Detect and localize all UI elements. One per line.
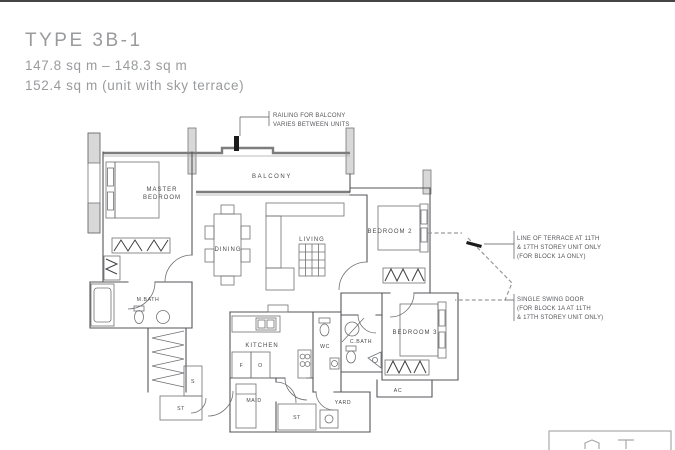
column [88, 203, 100, 233]
dining-table [214, 214, 241, 276]
label-bedroom2: BEDROOM 2 [367, 229, 412, 235]
label-fridge: F [240, 363, 244, 369]
coffee-table-grid [299, 244, 325, 276]
burner [305, 362, 310, 367]
annotation-railing-2: VARIES BETWEEN UNITS [273, 122, 350, 128]
label-store1: ST [177, 406, 185, 412]
walls [90, 152, 458, 432]
wardrobe [385, 360, 429, 375]
label-living: LIVING [299, 237, 325, 243]
walls-master-bath [90, 282, 192, 328]
toilet-bowl [347, 351, 356, 363]
pillow [108, 192, 114, 210]
master-bath-fixtures [91, 284, 170, 326]
door-arc-master-bath [128, 282, 155, 309]
dining-chair [205, 226, 214, 239]
sofa-arm [266, 216, 281, 268]
label-dining: DINING [215, 247, 242, 253]
wardrobe-hatch [385, 269, 424, 281]
floor-plan: MASTER BEDROOM BALCONY DINING LIVING BED… [0, 0, 675, 450]
bedroom2-furniture [378, 204, 428, 283]
balcony-rail-line [103, 148, 350, 153]
pillow [421, 228, 427, 242]
pillow [439, 332, 445, 348]
annotation-railing-1: RAILING FOR BALCONY [273, 113, 345, 119]
bed [378, 206, 420, 250]
label-ac-ledge: AC [394, 388, 402, 394]
door-arc-bedroom2 [339, 262, 367, 290]
wall-bedroom2-left [350, 195, 367, 262]
label-kitchen: KITCHEN [245, 343, 278, 349]
railing-marker [234, 136, 239, 151]
bathtub-inner [94, 288, 111, 322]
railing-leader [240, 111, 269, 136]
toilet-bowl [135, 311, 144, 324]
key-plan [549, 431, 671, 450]
wardrobe-hatch [387, 361, 426, 373]
console-table [268, 305, 288, 312]
furniture [91, 162, 446, 430]
toilet-tank [319, 318, 330, 323]
label-shoe-cabinet: S [191, 379, 195, 385]
pillow [108, 168, 114, 186]
terrace-dashed-diagonal [455, 238, 512, 300]
label-master-bedroom-2: BEDROOM [143, 195, 181, 201]
burner [305, 354, 310, 359]
dining-chair [221, 276, 234, 285]
shower [345, 322, 359, 336]
annotation-swing-door-2: (FOR BLOCK 1A AT 11TH [517, 306, 591, 312]
terrace-marker [466, 241, 482, 248]
sink-basin [258, 320, 265, 328]
columns [88, 128, 431, 233]
door-arc-entrance [208, 391, 233, 416]
sofa-chaise [266, 268, 294, 290]
annotation-terrace-3: (FOR BLOCK 1A ONLY) [517, 254, 586, 260]
dining-chair [221, 205, 234, 214]
laundry-sink-bowl [325, 415, 333, 423]
burner [300, 362, 305, 367]
doors [128, 255, 414, 416]
sofa-back [266, 203, 344, 216]
walls-bedroom3 [382, 293, 458, 380]
door-arc-kitchen-yard [285, 378, 307, 400]
dashed-lines [428, 233, 512, 300]
living-sofa [266, 203, 344, 312]
dining-chair [241, 249, 250, 262]
label-master-bedroom-1: MASTER [146, 187, 177, 193]
label-bedroom3: BEDROOM 3 [392, 330, 437, 336]
dining-chair [205, 249, 214, 262]
door-arc-bedroom3 [390, 293, 414, 317]
room-labels: MASTER BEDROOM BALCONY DINING LIVING BED… [137, 174, 438, 421]
annotation-swing-door-1: SINGLE SWING DOOR [517, 297, 585, 303]
wardrobe-hatch [106, 259, 117, 274]
label-store2: ST [293, 415, 301, 421]
terrace-leader [484, 231, 514, 259]
door-arc-entrance-second [191, 398, 206, 413]
maid-bed [236, 384, 256, 428]
sink-basin [267, 320, 274, 328]
burner [300, 354, 305, 359]
basin-bowl [372, 357, 377, 362]
basin-vanity [368, 352, 381, 368]
bedroom3-furniture [385, 302, 446, 375]
basin [157, 311, 170, 324]
coffee-table [299, 244, 325, 276]
label-common-bath: C.BATH [350, 339, 372, 345]
annotation-swing-door-3: & 17TH STOREY UNIT ONLY) [517, 315, 603, 321]
dining-set [205, 205, 250, 285]
laundry-sink [320, 410, 338, 428]
door-arc-master-bedroom [165, 255, 192, 282]
label-oven: O [258, 363, 263, 369]
pillow [439, 310, 445, 326]
master-wardrobe [104, 238, 170, 280]
walls-ac-ledge [377, 380, 432, 397]
label-master-bath: M.BATH [137, 297, 160, 303]
door-arc-wc [316, 392, 334, 410]
label-yard: YARD [335, 400, 351, 406]
label-balcony: BALCONY [252, 174, 292, 180]
annotation-terrace-2: & 17TH STOREY UNIT ONLY [517, 245, 601, 251]
label-wc: WC [320, 344, 330, 350]
dining-chair [241, 226, 250, 239]
key-plan-box [549, 431, 671, 450]
column [88, 133, 100, 163]
label-maid: MAID [246, 398, 261, 404]
column [346, 128, 354, 174]
annotation-texts: RAILING FOR BALCONY VARIES BETWEEN UNITS… [273, 113, 603, 321]
door-arc-common-bath [358, 315, 376, 333]
toilet-bowl [320, 324, 329, 336]
pillow [421, 210, 427, 224]
basin-bowl [332, 361, 338, 367]
wardrobe-hatch [114, 240, 168, 251]
stairs-chevrons [152, 331, 184, 387]
annotation-terrace-1: LINE OF TERRACE AT 11TH [517, 236, 600, 242]
toilet-tank [346, 346, 356, 351]
